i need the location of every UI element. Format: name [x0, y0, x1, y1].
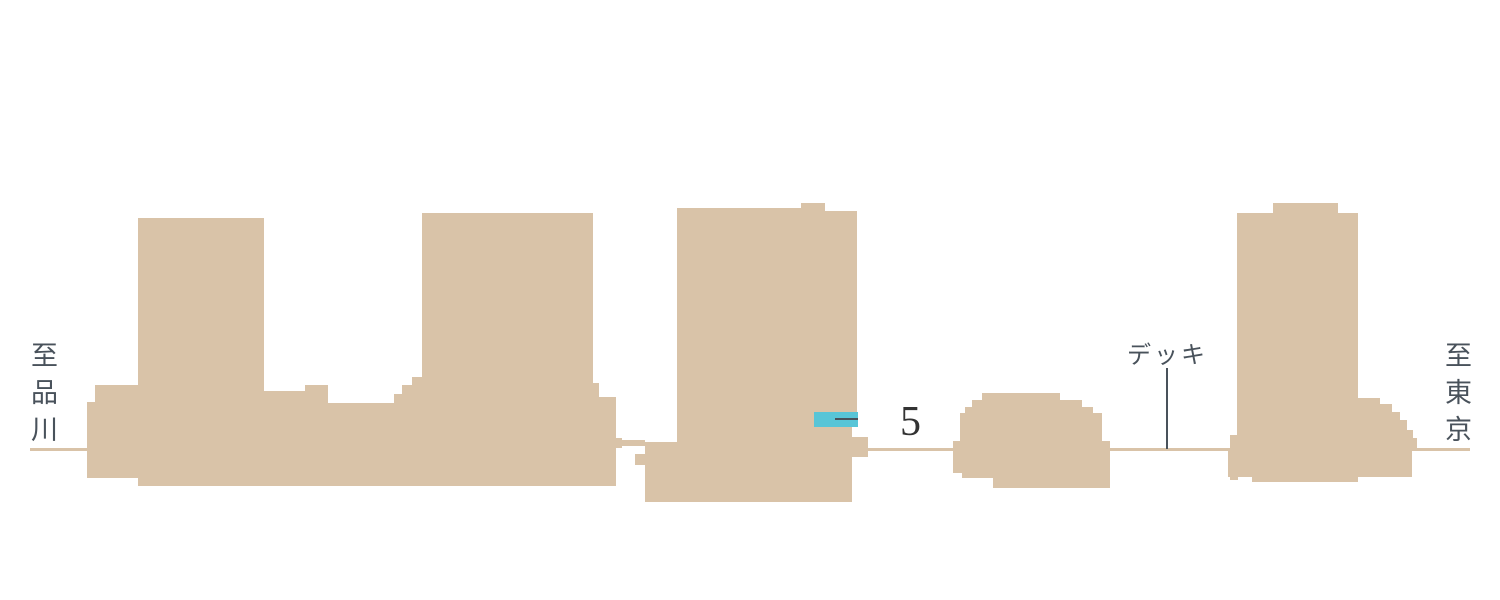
building-1-podium-main — [138, 391, 306, 486]
building-3-body — [677, 208, 801, 502]
building-3-base-left — [645, 442, 677, 502]
building-4-base-b — [993, 478, 1110, 488]
deck-leader-line — [1166, 368, 1168, 449]
floor-number-label: 5 — [900, 401, 921, 443]
building-3-base-right-bump — [852, 437, 868, 457]
deck-label: デッキ — [1127, 343, 1208, 367]
building-5-bump-c — [1392, 412, 1400, 450]
building-4-mid — [960, 413, 1102, 441]
ground-line-segment-mid — [866, 448, 953, 451]
building-3-lower-right — [825, 427, 852, 502]
building-5-bump-d — [1400, 420, 1407, 450]
building-3-upper-right — [825, 211, 857, 427]
deck-fragment-b — [622, 440, 645, 446]
building-3-roof-raised — [801, 203, 825, 502]
direction-label-shinagawa: 至品川 — [28, 341, 55, 452]
building-5-base-deep — [1252, 450, 1358, 482]
building-1-podium-left — [87, 402, 140, 478]
cross-section-diagram: 5 デッキ 至品川 至東京 — [0, 0, 1500, 600]
highlight-floor-leader-line — [835, 418, 858, 420]
building-5-bump-f — [1413, 438, 1417, 450]
ground-line-segment-deck — [1107, 448, 1231, 451]
building-4-lower — [953, 441, 1110, 473]
direction-label-tokyo: 至東京 — [1442, 341, 1469, 452]
building-5-tower — [1237, 213, 1358, 450]
building-2-tower — [422, 213, 593, 486]
building-5-bump-a — [1358, 398, 1380, 450]
building-1-podium-low — [306, 403, 396, 486]
building-5-bump-b — [1380, 404, 1392, 450]
deck-fragment-a — [609, 438, 622, 448]
building-1-podium-bump — [305, 385, 328, 405]
